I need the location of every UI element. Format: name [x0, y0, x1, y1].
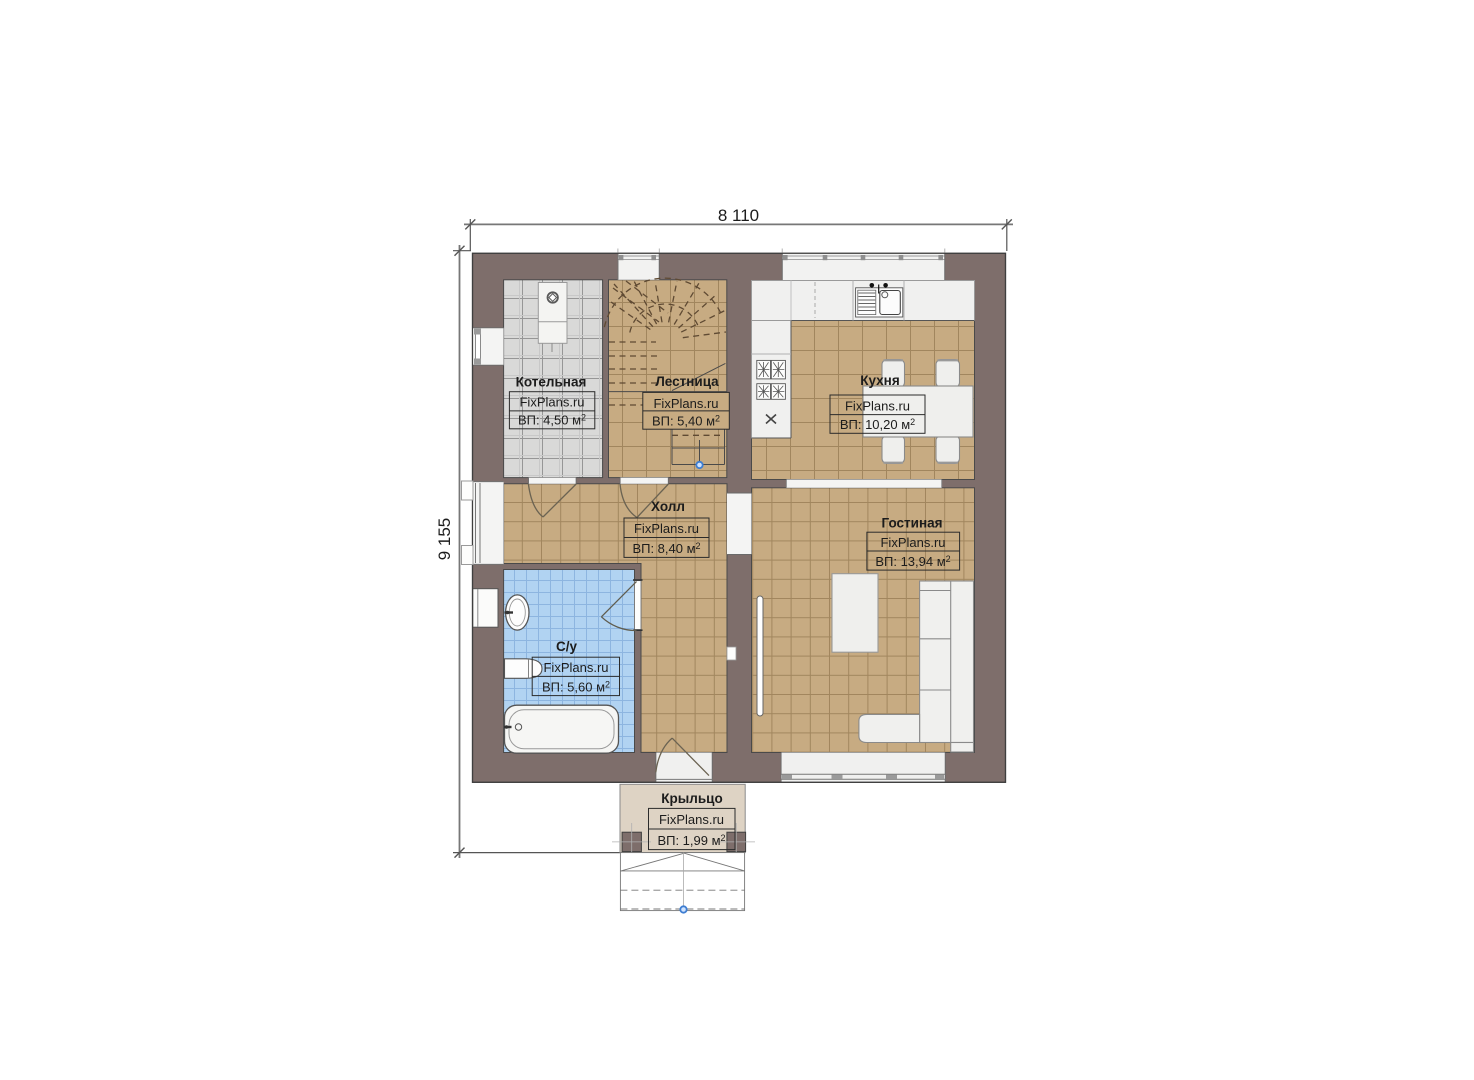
- svg-text:FixPlans.ru: FixPlans.ru: [519, 395, 584, 410]
- svg-text:Котельная: Котельная: [516, 375, 587, 390]
- svg-text:ВП: 5,60 м2: ВП: 5,60 м2: [542, 680, 610, 695]
- svg-text:FixPlans.ru: FixPlans.ru: [543, 660, 608, 675]
- svg-text:FixPlans.ru: FixPlans.ru: [880, 535, 945, 550]
- svg-text:FixPlans.ru: FixPlans.ru: [634, 521, 699, 536]
- svg-text:FixPlans.ru: FixPlans.ru: [659, 812, 724, 827]
- svg-text:ВП: 8,40 м2: ВП: 8,40 м2: [632, 541, 700, 556]
- svg-text:Холл: Холл: [651, 499, 685, 514]
- svg-text:ВП: 4,50 м2: ВП: 4,50 м2: [518, 413, 586, 428]
- svg-text:ВП: 1,99 м2: ВП: 1,99 м2: [657, 833, 725, 848]
- svg-text:Крыльцо: Крыльцо: [661, 791, 722, 806]
- svg-text:ВП: 5,40 м2: ВП: 5,40 м2: [652, 414, 720, 429]
- svg-text:ВП: 13,94 м2: ВП: 13,94 м2: [875, 554, 950, 569]
- svg-text:Лестница: Лестница: [655, 374, 719, 389]
- svg-text:Кухня: Кухня: [860, 373, 899, 388]
- svg-text:ВП: 10,20 м2: ВП: 10,20 м2: [840, 417, 915, 432]
- svg-text:9 155: 9 155: [435, 518, 454, 561]
- svg-text:FixPlans.ru: FixPlans.ru: [845, 399, 910, 414]
- svg-text:Гостиная: Гостиная: [881, 516, 942, 531]
- svg-text:С/у: С/у: [556, 639, 578, 654]
- svg-text:8 110: 8 110: [718, 206, 759, 225]
- svg-text:FixPlans.ru: FixPlans.ru: [653, 396, 718, 411]
